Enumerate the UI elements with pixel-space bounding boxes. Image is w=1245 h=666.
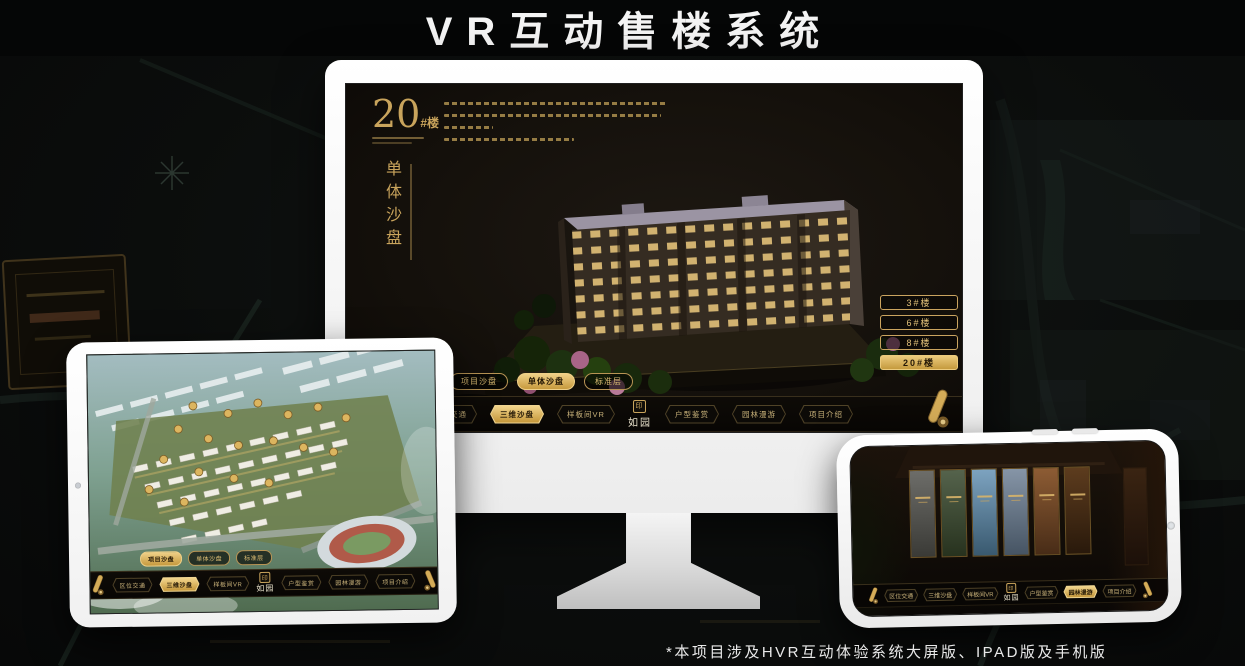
gallery-card[interactable] [971,468,999,557]
page-heading: 20#楼 [372,94,439,144]
page-canvas: VR互动售楼系统 20#楼 单体沙盘 [0,0,1245,666]
nav-item-location[interactable]: 区位交通 [884,588,918,602]
nav-item-model-room-vr[interactable]: 样板间VR [557,405,615,424]
compass-icon [155,156,189,190]
phone-volume-button [1072,428,1098,434]
tablet-mockup: 项目沙盘 单体沙盘 标准层 区位交通 三维沙盘 样板间VR 印 如园 户型鉴赏 … [66,337,457,627]
tablet-tab-project-sandbox[interactable]: 项目沙盘 [140,551,182,567]
nav-item-floorplans[interactable]: 户型鉴赏 [665,405,719,424]
nav-item-model-room-vr[interactable]: 样板间VR [206,576,249,592]
tablet-camera-icon [75,482,81,488]
brand-logo: 印 如园 [1003,583,1019,603]
nav-item-garden-roam[interactable]: 园林漫游 [1063,585,1097,599]
gallery-card[interactable] [940,469,968,558]
brand-logo: 印 如园 [256,572,274,594]
tablet-screen: 项目沙盘 单体沙盘 标准层 区位交通 三维沙盘 样板间VR 印 如园 户型鉴赏 … [86,350,439,615]
nav-item-garden-roam[interactable]: 园林漫游 [328,574,368,590]
seal-icon: 印 [260,572,271,583]
heading-caption-line2 [372,142,412,144]
gallery-card[interactable] [1002,468,1030,557]
gallery-card[interactable] [909,470,937,559]
nav-item-3d-sandbox[interactable]: 三维沙盘 [490,405,544,424]
nav-item-garden-roam[interactable]: 园林漫游 [732,405,786,424]
phone-volume-button [1032,429,1058,435]
nav-item-floorplans[interactable]: 户型鉴赏 [281,575,321,591]
phone-camera-icon [1167,521,1175,529]
nav-item-model-room-vr[interactable]: 样板间VR [962,587,999,601]
heading-caption-line [372,137,424,139]
scroll-menu-icon[interactable] [422,569,438,593]
brand-logo: 印 如园 [628,400,652,429]
gallery-card[interactable] [1033,467,1061,556]
phone-mockup: 区位交通 三维沙盘 样板间VR 印 如园 户型鉴赏 园林漫游 项目介绍 [836,428,1182,628]
nav-item-floorplans[interactable]: 户型鉴赏 [1024,585,1058,599]
building-number-suffix: #楼 [420,116,439,130]
nav-item-project-intro[interactable]: 项目介绍 [1102,584,1136,598]
phone-frame: 区位交通 三维沙盘 样板间VR 印 如园 户型鉴赏 园林漫游 项目介绍 [836,428,1182,628]
tablet-nav-bar: 区位交通 三维沙盘 样板间VR 印 如园 户型鉴赏 园林漫游 项目介绍 [90,567,437,600]
tablet-tab-single-sandbox[interactable]: 单体沙盘 [188,550,230,566]
scroll-menu-icon[interactable] [922,387,952,431]
nav-item-project-intro[interactable]: 项目介绍 [799,405,853,424]
phone-screen: 区位交通 三维沙盘 样板间VR 印 如园 户型鉴赏 园林漫游 项目介绍 [849,440,1169,618]
vertical-subtitle: 单体沙盘 [380,160,412,260]
page-header: VR互动售楼系统 [0,0,1245,56]
nav-item-project-intro[interactable]: 项目介绍 [375,573,415,589]
nav-item-3d-sandbox[interactable]: 三维沙盘 [159,576,199,592]
monitor-sub-tabs: 项目沙盘 单体沙盘 标准层 [450,373,633,390]
building-number: 20 [372,92,420,136]
floor-button-6[interactable]: 6#楼 [880,315,958,330]
seal-icon: 印 [633,400,646,413]
tab-single-sandbox[interactable]: 单体沙盘 [517,373,575,390]
footnote: *本项目涉及HVR互动体验系统大屏版、IPAD版及手机版 [666,641,1107,662]
page-title: VR互动售楼系统 [412,0,834,57]
floor-button-3[interactable]: 3#楼 [880,295,958,310]
doorway [1123,467,1149,565]
scroll-menu-icon[interactable] [89,573,105,597]
nav-item-location[interactable]: 区位交通 [112,577,152,593]
tablet-sub-tabs: 项目沙盘 单体沙盘 标准层 [140,550,272,567]
scroll-menu-icon[interactable] [1141,580,1154,600]
tab-standard-floor[interactable]: 标准层 [584,373,633,390]
gallery-card[interactable] [1064,466,1092,555]
seal-icon: 印 [1006,583,1016,593]
nav-item-3d-sandbox[interactable]: 三维沙盘 [923,588,957,602]
intro-paragraph [444,102,668,150]
scroll-menu-icon[interactable] [866,586,879,606]
tablet-tab-standard-floor[interactable]: 标准层 [236,550,272,565]
floor-button-20[interactable]: 20#楼 [880,355,958,370]
floor-selector: 3#楼 6#楼 8#楼 20#楼 [880,295,958,370]
gallery-panels [909,466,1092,558]
tab-project-sandbox[interactable]: 项目沙盘 [450,373,508,390]
floor-button-8[interactable]: 8#楼 [880,335,958,350]
tablet-frame: 项目沙盘 单体沙盘 标准层 区位交通 三维沙盘 样板间VR 印 如园 户型鉴赏 … [66,337,457,627]
